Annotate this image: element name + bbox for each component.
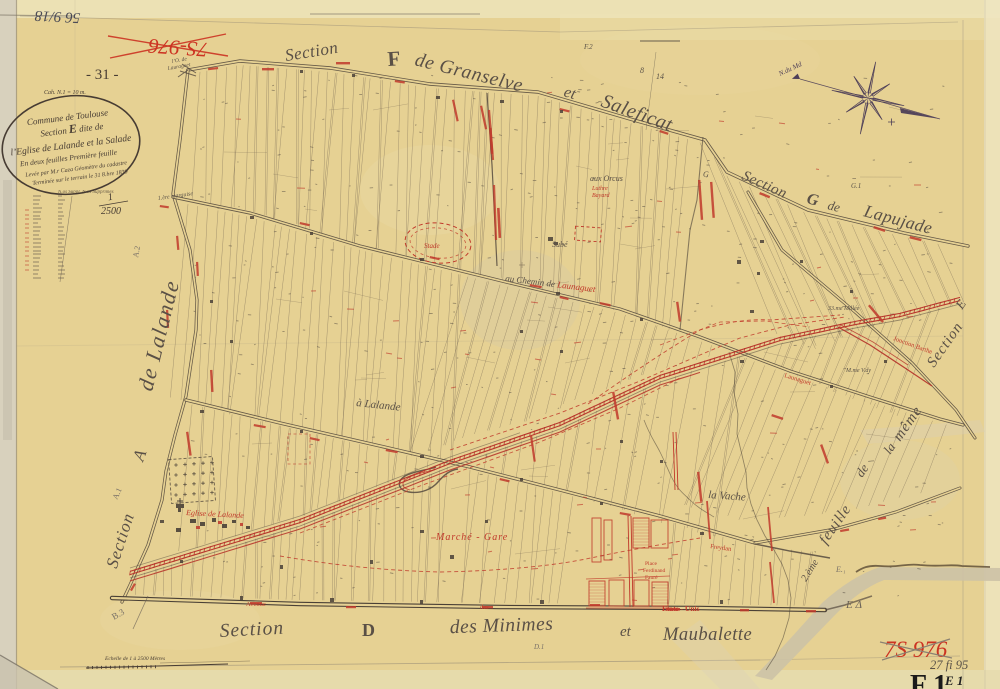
svg-text:Bayard: Bayard bbox=[592, 193, 610, 199]
svg-text:Subé: Subé bbox=[552, 240, 568, 249]
svg-text:33.me Millée: 33.me Millée bbox=[827, 306, 860, 312]
svg-text:- 31 -: - 31 - bbox=[86, 67, 119, 83]
svg-text:aux Orcus: aux Orcus bbox=[590, 174, 623, 183]
svg-text:N.os Suppl. N.os Supprimés: N.os Suppl. N.os Supprimés bbox=[57, 190, 114, 195]
svg-text:Luthre: Luthre bbox=[591, 186, 608, 192]
svg-text:des: des bbox=[480, 604, 489, 611]
svg-text:Avenue: Avenue bbox=[246, 601, 266, 608]
svg-text:F: F bbox=[387, 46, 401, 71]
svg-text:M.me V.dy: M.me V.dy bbox=[845, 368, 871, 374]
svg-text:Ferdinand: Ferdinand bbox=[643, 568, 666, 574]
svg-text:Stade: Stade bbox=[424, 242, 440, 250]
svg-text:G.1: G.1 bbox=[851, 182, 861, 190]
svg-text:E.₁: E.₁ bbox=[835, 565, 846, 574]
svg-text:D.1: D.1 bbox=[533, 643, 544, 651]
svg-text:Cah. N.1 = 10 m.: Cah. N.1 = 10 m. bbox=[44, 90, 86, 96]
svg-text:14: 14 bbox=[656, 72, 664, 81]
svg-text:F.2: F.2 bbox=[583, 43, 593, 51]
svg-text:Echelle de 1 à 2500 Mètres: Echelle de 1 à 2500 Mètres bbox=[104, 656, 165, 662]
svg-text:G: G bbox=[703, 170, 709, 179]
svg-text:des Minimes: des Minimes bbox=[449, 614, 553, 639]
svg-text:Etats - Unis: Etats - Unis bbox=[662, 604, 700, 613]
svg-text:2500: 2500 bbox=[101, 206, 121, 217]
svg-text:Maubalette: Maubalette bbox=[662, 625, 752, 645]
svg-text:Section: Section bbox=[219, 618, 284, 642]
svg-text:56 9/18: 56 9/18 bbox=[34, 7, 81, 25]
svg-text:Marché - Gare: Marché - Gare bbox=[435, 532, 508, 543]
svg-text:Fauré: Fauré bbox=[645, 575, 658, 581]
svg-text:8: 8 bbox=[640, 66, 644, 75]
svg-text:E Δ: E Δ bbox=[845, 599, 862, 611]
svg-text:Place: Place bbox=[645, 561, 657, 567]
svg-text:et: et bbox=[620, 624, 632, 640]
svg-text:D: D bbox=[362, 620, 375, 640]
svg-text:F 1: F 1 bbox=[910, 670, 947, 689]
